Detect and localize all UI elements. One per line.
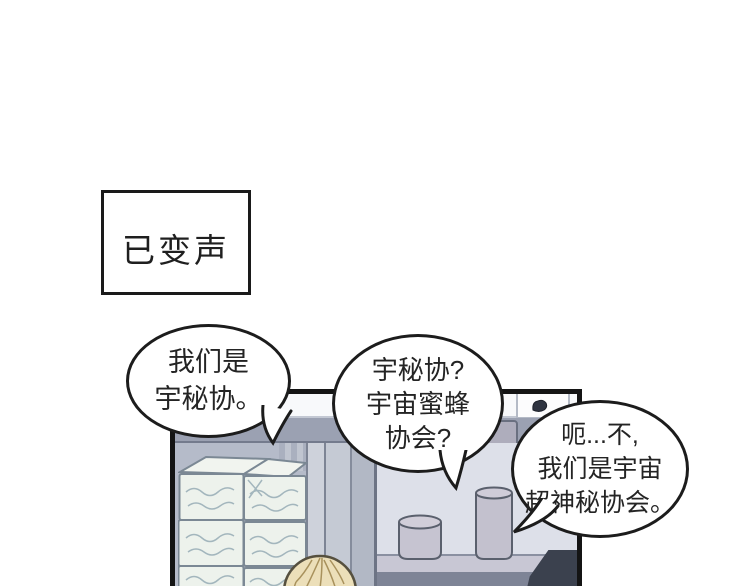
bubble-line: 呃...不,: [561, 418, 639, 452]
caption-box: 已变声: [101, 190, 251, 295]
speech-bubble-2: 宇秘协? 宇宙蜜蜂 协会?: [332, 334, 504, 473]
small-cylinder: [396, 512, 444, 562]
character-head: [282, 548, 362, 586]
bubble-line: 宇宙蜜蜂: [366, 387, 470, 421]
bubble-line: 宇秘协?: [372, 353, 464, 387]
bubble-tail-3: [510, 498, 560, 538]
bubble-tail-2: [434, 450, 476, 492]
comic-page: 已变声: [0, 0, 750, 586]
tall-cylinder: [474, 484, 514, 562]
caption-text: 已变声: [122, 214, 230, 272]
bubble-line: 我们是宇宙: [537, 452, 662, 486]
bubble-line: 我们是: [168, 344, 249, 381]
dark-small-item: [531, 398, 549, 413]
bubble-line: 宇秘协。: [155, 381, 263, 418]
bubble-tail-1: [255, 405, 300, 450]
